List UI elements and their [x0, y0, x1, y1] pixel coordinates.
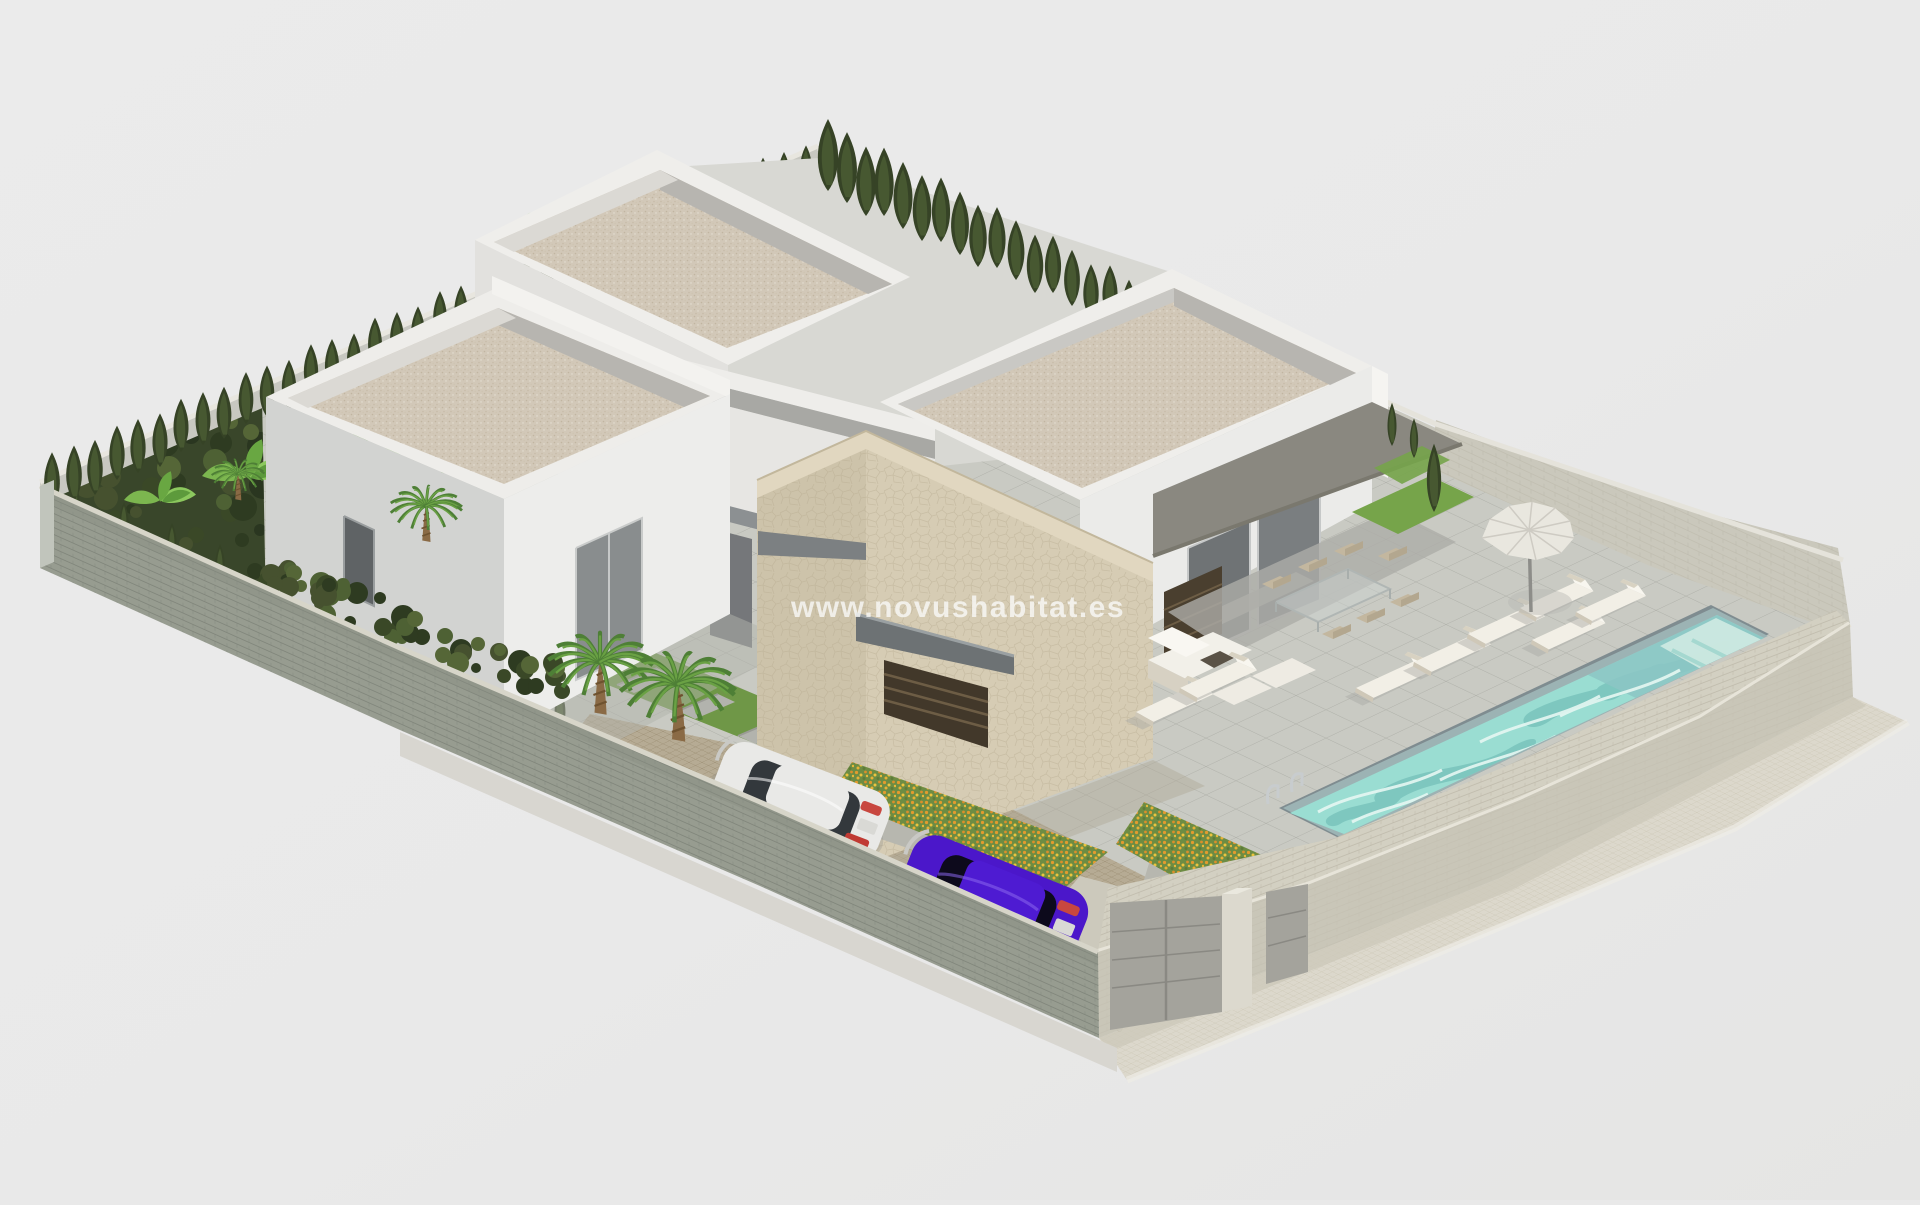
- svg-text:www.novushabitat.es: www.novushabitat.es: [790, 591, 1125, 624]
